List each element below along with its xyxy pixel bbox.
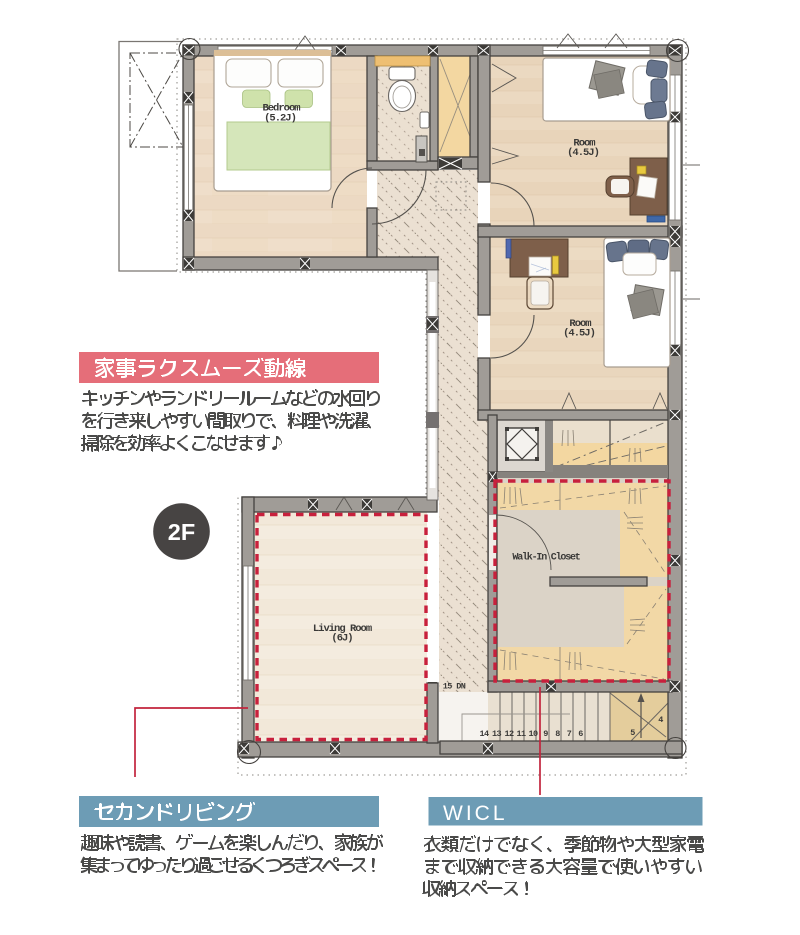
svg-text:11: 11 [516,729,526,739]
svg-text:(4.5J): (4.5J) [563,328,595,340]
svg-text:15 DN: 15 DN [443,682,466,692]
svg-text:14: 14 [479,729,489,739]
svg-text:7: 7 [567,729,572,739]
svg-text:6: 6 [578,729,583,739]
svg-text:WICL: WICL [443,802,508,825]
svg-text:Walk-In Closet: Walk-In Closet [512,552,580,564]
svg-text:5: 5 [630,728,635,738]
svg-text:13: 13 [492,729,502,739]
svg-text:12: 12 [504,729,514,739]
svg-text:(6J): (6J) [331,633,352,645]
svg-text:8: 8 [555,729,560,739]
svg-text:9: 9 [543,729,548,739]
svg-text:(5.2J): (5.2J) [264,113,296,125]
svg-text:2F: 2F [168,519,195,545]
svg-text:10: 10 [528,729,538,739]
svg-text:4: 4 [658,715,663,725]
svg-text:(4.5J): (4.5J) [567,147,599,159]
